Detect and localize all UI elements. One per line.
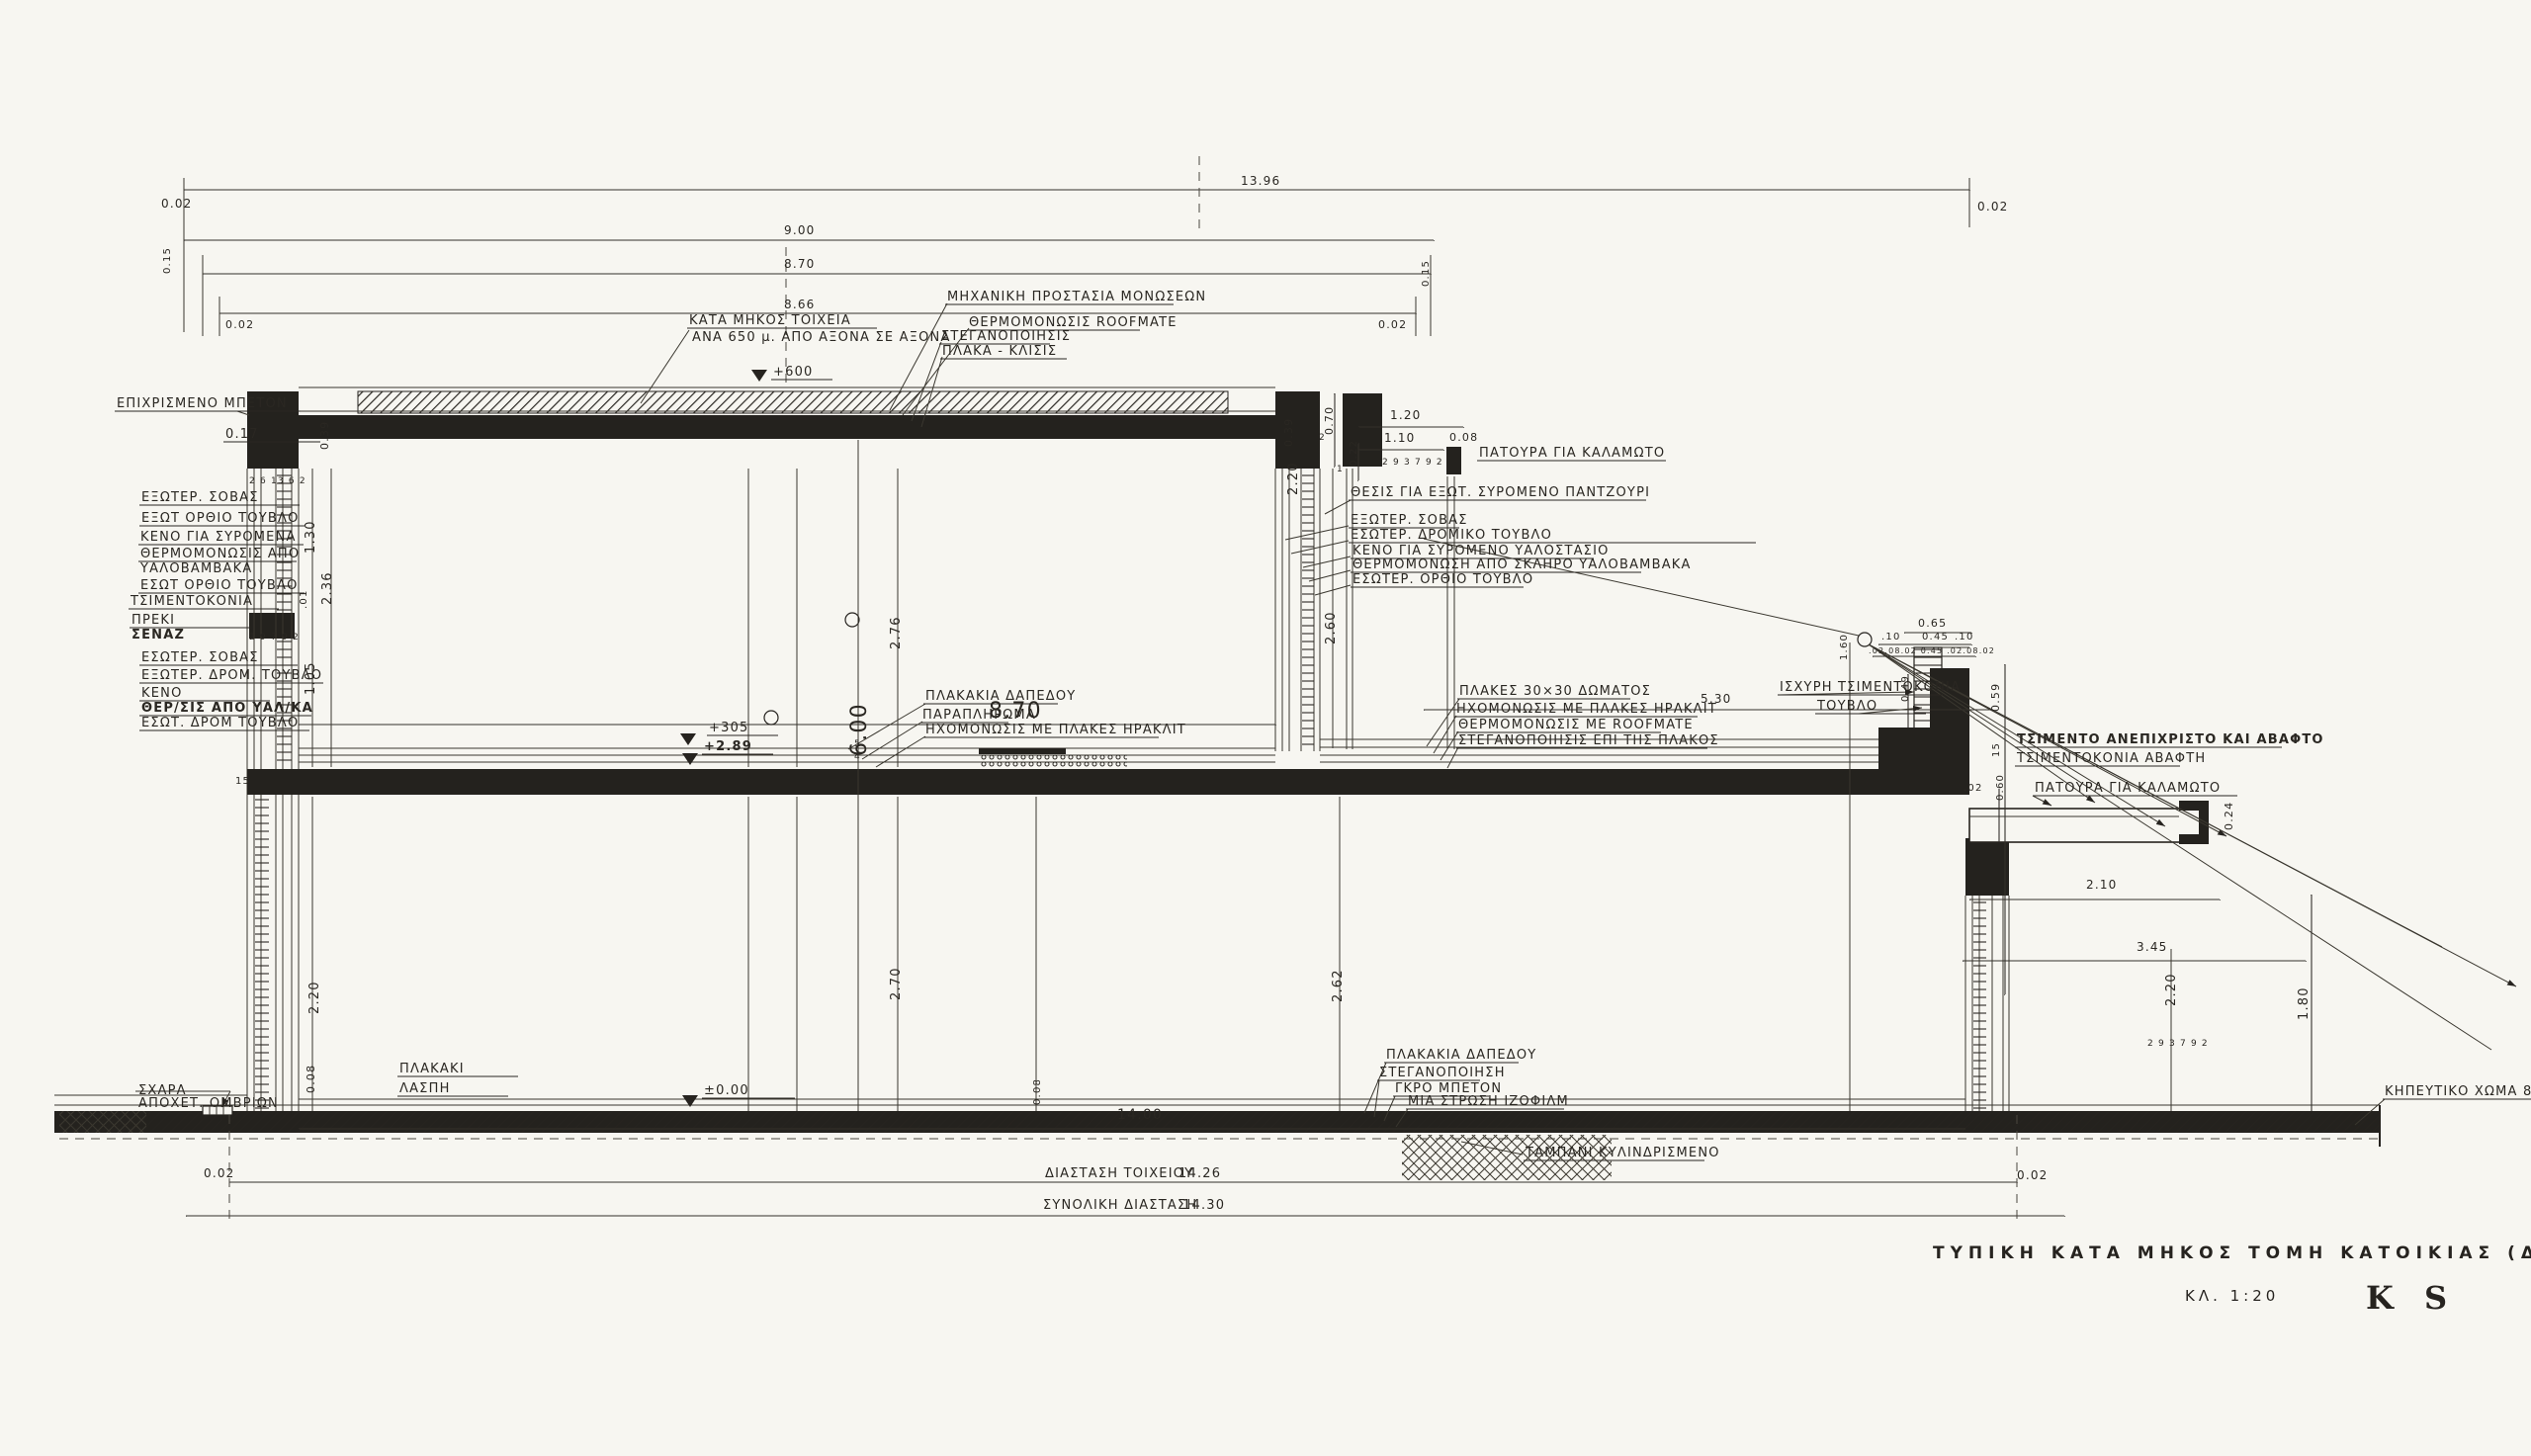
dim-260: 2.60 — [1324, 611, 1339, 644]
label-steganopoiisis-top: ΣΤΕΓΑΝΟΠΟΙΗΣΙΣ — [941, 329, 1071, 344]
label-tsimento-anepixristo: ΤΣΙΜΕΝΤΟ ΑΝΕΠΙΧΡΙΣΤΟ ΚΑΙ ΑΒΑΦΤΟ — [2017, 732, 2324, 747]
value-1430: 14.30 — [1182, 1198, 1225, 1213]
dim-15-left: 15 — [235, 776, 250, 787]
tiny-4: 4 — [854, 752, 861, 762]
dim-120: 1.20 — [1390, 408, 1422, 422]
label-esoter-sovas: ΕΣΩΤΕΡ. ΣΟΒΑΣ — [141, 650, 259, 665]
dim-15-right: 15 — [1991, 742, 2002, 757]
dim-110: 1.10 — [1384, 431, 1416, 445]
label-laspi: ΛΑΣΠΗ — [399, 1081, 451, 1096]
label-apochet-omvrion: ΑΠΟΧΕΤ. ΟΜΒΡΙΩΝ — [138, 1096, 279, 1111]
label-ixomonosis-1: ΗΧΟΜΟΝΩΣΙΣ ΜΕ ΠΛΑΚΕΣ ΗΡΑΚΛΙΤ — [925, 723, 1186, 737]
label-mia-strosi-izofilm: ΜΙΑ ΣΤΡΩΣΗ ΙΖΟΦΙΛΜ — [1408, 1094, 1569, 1109]
dim-1400: 14.00 — [1117, 1107, 1163, 1123]
dim-160: 1.60 — [1839, 634, 1850, 660]
dim-008-mid: 0.08 — [1032, 1078, 1043, 1105]
label-diastasi-toixeiou: ΔΙΑΣΤΑΣΗ ΤΟΙΧΕΙΟΥ — [1045, 1166, 1193, 1181]
layers-parapet: .02.08.02 0.45 .02.08.02 — [1869, 646, 1995, 655]
label-kipeutiko-xoma: ΚΗΠΕΥΤΙΚΟ ΧΩΜΑ 8εκ. — [2385, 1084, 2531, 1099]
label-tsimentokonia: ΤΣΙΜΕΝΤΟΚΟΝΙΑ — [130, 594, 253, 609]
label-steganopoiisi-bottom: ΣΤΕΓΑΝΟΠΟΙΗΣΗ — [1379, 1066, 1506, 1080]
dim-105: 1.05 — [304, 661, 318, 695]
layers-bottom-right: 2 9 3 7 9 2 — [2147, 1039, 2209, 1049]
tiny-1: 1 — [1337, 465, 1344, 474]
label-paraplhroma: ΠΑΡΑΠΛΗΡΩΜΑ — [922, 708, 1036, 723]
dim-220-bottom-right: 2.20 — [2164, 973, 2179, 1006]
dim-130: 1.30 — [304, 520, 318, 554]
dim-060: 0.60 — [1995, 774, 2006, 801]
label-yalovamvaka: ΥΑΛΟΒΑΜΒΑΚΑ — [139, 561, 252, 576]
label-stegano-epi-plakos: ΣΤΕΓΑΝΟΠΟΙΗΣΙΣ ΕΠΙ ΤΗΣ ΠΛΑΚΟΣ — [1458, 733, 1719, 748]
dim-900: 9.00 — [784, 223, 816, 237]
dim-262: 2.62 — [1331, 969, 1346, 1002]
title-block: ΤΥΠΙΚΗ ΚΑΤΑ ΜΗΚΟΣ ΤΟΜΗ ΚΑΤΟΙΚΙΑΣ (ΔΙΟΡΟΦ… — [1933, 1243, 2506, 1263]
label-preki: ΠΡΕΚΙ — [131, 613, 175, 628]
dim-345: 3.45 — [2137, 940, 2168, 954]
label-plakes-3030: ΠΛΑΚΕΣ 30×30 ΔΩΜΑΤΟΣ — [1459, 684, 1651, 699]
label-patoura-1: ΠΑΤΟΥΡΑ ΓΙΑ ΚΑΛΑΜΩΤΟ — [1479, 446, 1665, 461]
label-esoter-dromiko-touvlo: ΕΣΩΤΕΡ. ΔΡΟΜΙΚΟ ΤΟΥΒΛΟ — [1351, 528, 1552, 543]
drawing-sheet: ΕΠΙΧΡΙΣΜΕΝΟ ΜΠΕΤΟΝ0.17ΕΞΩΤΕΡ. ΣΟΒΑΣΕΞΩΤ … — [0, 0, 2531, 1456]
label-ther-sis-apo-yal-ka: ΘΕΡ/ΣΙΣ ΑΠΟ ΥΑΛ/ΚΑ — [141, 701, 313, 716]
dim-270: 2.70 — [889, 967, 904, 1000]
dim-01: .01 — [299, 589, 309, 609]
label-exoter-drom-touvlo: ΕΞΩΤΕΡ. ΔΡΟΜ. ΤΟΥΒΛΟ — [141, 668, 322, 683]
dim-008-window: 0.08 — [1449, 431, 1478, 444]
dim-276: 2.76 — [889, 616, 904, 649]
label-keno: ΚΕΝΟ — [141, 686, 183, 701]
label-isxyri-tsimentokonia: ΙΣΧΥΡΗ ΤΣΙΜΕΝΤΟΚΟΝΙΑ — [1780, 680, 1961, 695]
dim-180: 1.80 — [2297, 986, 2312, 1020]
layers-right-top: 2 9 3 7 9 2 — [1382, 458, 1443, 468]
dim-02-pergola: .02 — [1964, 783, 1983, 794]
label-thermo-roofmate-2: ΘΕΡΜΟΜΟΝΩΣΙΣ ΜΕ ROOFMATE — [1458, 718, 1694, 732]
label-synoliki-diastasi: ΣΥΝΟΛΙΚΗ ΔΙΑΣΤΑΣΗ — [1043, 1198, 1197, 1213]
label-plaka-klisis: ΠΛΑΚΑ - ΚΛΙΣΙΣ — [942, 344, 1057, 359]
level-plus-600: +600 — [773, 365, 814, 380]
label-plakaki: ΠΛΑΚΑΚΙ — [399, 1062, 465, 1076]
level-zero: ±0.00 — [704, 1083, 749, 1098]
tiny-2: 2 — [1319, 433, 1326, 443]
label-senaz: ΣΕΝΑΖ — [131, 628, 185, 642]
dim-015-right: 0.15 — [1421, 260, 1432, 287]
level-plus-289: +2.89 — [704, 739, 752, 754]
label-plakakia-dapedou-2: ΠΛΑΚΑΚΙΑ ΔΑΠΕΔΟΥ — [1386, 1048, 1536, 1063]
dim-866: 8.66 — [784, 298, 816, 311]
dim-002-top-left: 0.02 — [161, 197, 193, 211]
dim-065: 0.65 — [1918, 617, 1947, 630]
drawing-title: ΤΥΠΙΚΗ ΚΑΤΑ ΜΗΚΟΣ ΤΟΜΗ ΚΑΤΟΙΚΙΑΣ (ΔΙΟΡΟΦ… — [1933, 1243, 2506, 1263]
label-thesis-pantzouri: ΘΕΣΙΣ ΓΙΑ ΕΞΩΤ. ΣΥΡΟΜΕΝΟ ΠΑΝΤΖΟΥΡΙ — [1351, 485, 1650, 500]
dim-002-top-right: 0.02 — [1977, 200, 2009, 214]
dim-045a: 0.45 — [1922, 632, 1949, 642]
dim-059: 0.59 — [1989, 683, 2002, 712]
label-mixaniki-prostasia: ΜΗΧΑΝΙΚΗ ΠΡΟΣΤΑΣΙΑ ΜΟΝΩΣΕΩΝ — [947, 290, 1206, 304]
label-touvlo: ΤΟΥΒΛΟ — [1816, 699, 1877, 714]
annotation-layer: ΕΠΙΧΡΙΣΜΕΝΟ ΜΠΕΤΟΝ0.17ΕΞΩΤΕΡ. ΣΟΒΑΣΕΞΩΤ … — [0, 0, 2531, 1456]
label-exot-orthio-touvlo: ΕΞΩΤ ΟΡΘΙΟ ΤΟΥΒΛΟ — [141, 511, 300, 526]
label-kata-mikos-2: ΑΝΑ 650 μ. ΑΠΟ ΑΞΟΝΑ ΣΕ ΑΞΟΝΑ — [692, 330, 951, 345]
dim-022: 0.22 — [1349, 440, 1359, 467]
dim-002-bottom-right: 0.02 — [2017, 1168, 2049, 1182]
level-plus-305: +305 — [709, 721, 749, 735]
label-esot-drom-touvlo: ΕΣΩΤ. ΔΡΟΜ ΤΟΥΒΛΟ — [141, 716, 299, 730]
label-thermomonosis-apo: ΘΕΡΜΟΜΟΝΩΣΙΣ ΑΠΟ — [140, 547, 300, 561]
label-plakakia-dapedou-1: ΠΛΑΚΑΚΙΑ ΔΑΠΕΔΟΥ — [925, 689, 1076, 704]
label-esoter-orthio-touvlo: ΕΣΩΤΕΡ. ΟΡΘΙΟ ΤΟΥΒΛΟ — [1353, 572, 1533, 587]
dim-039-left: 0.39 — [318, 421, 331, 450]
layers-left-top: 2 6 13 6 2 — [249, 476, 306, 486]
dim-1396: 13.96 — [1241, 174, 1280, 188]
drawing-scale: ΚΛ. 1:20 — [2185, 1287, 2279, 1305]
dim-002-bottom-left: 0.02 — [204, 1166, 235, 1180]
dim-015-left: 0.15 — [162, 247, 173, 274]
label-keno-gia-syromena: ΚΕΝΟ ΓΙΑ ΣΥΡΟΜΕΝΑ — [140, 530, 297, 545]
dim-039-right: 0.39 — [1282, 418, 1295, 447]
dim-220-left: 2.20 — [307, 981, 322, 1014]
label-thermo-skliro: ΘΕΡΜΟΜΟΝΩΣΗ ΑΠΟ ΣΚΛΗΡΟ ΥΑΛΟΒΑΜΒΑΚΑ — [1353, 557, 1692, 572]
dim-008-left: 0.08 — [305, 1065, 317, 1093]
dim-530: 5.30 — [1701, 692, 1732, 706]
dim-10b: .10 — [1955, 632, 1974, 642]
dim-024: 0.24 — [2223, 802, 2235, 830]
label-esot-orthio-touvlo: ΕΣΩΤ ΟΡΘΙΟ ΤΟΥΒΛΟ — [140, 578, 299, 593]
dim-002-left-2: 0.02 — [225, 318, 254, 331]
layers-left-mid: 2 9 7 9 2 — [249, 633, 300, 642]
architect-logo: K S — [2366, 1279, 2457, 1317]
label-patoura-2: ΠΑΤΟΥΡΑ ΓΙΑ ΚΑΛΑΜΩΤΟ — [2035, 781, 2221, 796]
dim-220-upper-right: 2.20 — [1286, 462, 1301, 495]
tiny-5: 5 — [854, 739, 861, 749]
dim-870-top: 8.70 — [784, 257, 816, 271]
dim-002-right-2: 0.02 — [1378, 318, 1407, 331]
label-keno-yalostasio: ΚΕΝΟ ΓΙΑ ΣΥΡΟΜΕΝΟ ΥΑΛΟΣΤΑΣΙΟ — [1353, 544, 1610, 558]
label-tampani: ΤΑΜΠΑΝΙ ΚΥΛΙΝΔΡΙΣΜΕΝΟ — [1525, 1146, 1720, 1160]
value-1426: 14.26 — [1178, 1166, 1221, 1181]
label-tsimentokonia-avafti: ΤΣΙΜΕΝΤΟΚΟΝΙΑ ΑΒΑΦΤΗ — [2016, 751, 2206, 766]
dim-236: 2.36 — [320, 571, 335, 605]
label-kata-mikos-1: ΚΑΤΑ ΜΗΚΟΣ ΤΟΙΧΕΙΑ — [689, 313, 851, 328]
label-epichrismeno-beton: ΕΠΙΧΡΙΣΜΕΝΟ ΜΠΕΤΟΝ — [117, 396, 288, 411]
dim-210: 2.10 — [2086, 878, 2118, 892]
label-exoter-sovas: ΕΞΩΤΕΡ. ΣΟΒΑΣ — [141, 490, 259, 505]
dim-070: 0.70 — [1323, 406, 1336, 435]
dim-10a: .10 — [1881, 632, 1901, 642]
label-ixomonosis-2: ΗΧΟΜΟΝΩΣΙΣ ΜΕ ΠΛΑΚΕΣ ΗΡΑΚΛΙΤ — [1456, 702, 1717, 717]
label-thermo-roofmate-top: ΘΕΡΜΟΜΟΝΩΣΙΣ ROOFMATE — [969, 315, 1178, 330]
dim-017: 0.17 — [225, 427, 259, 442]
label-exoter-sovas-2: ΕΞΩΤΕΡ. ΣΟΒΑΣ — [1351, 513, 1468, 528]
